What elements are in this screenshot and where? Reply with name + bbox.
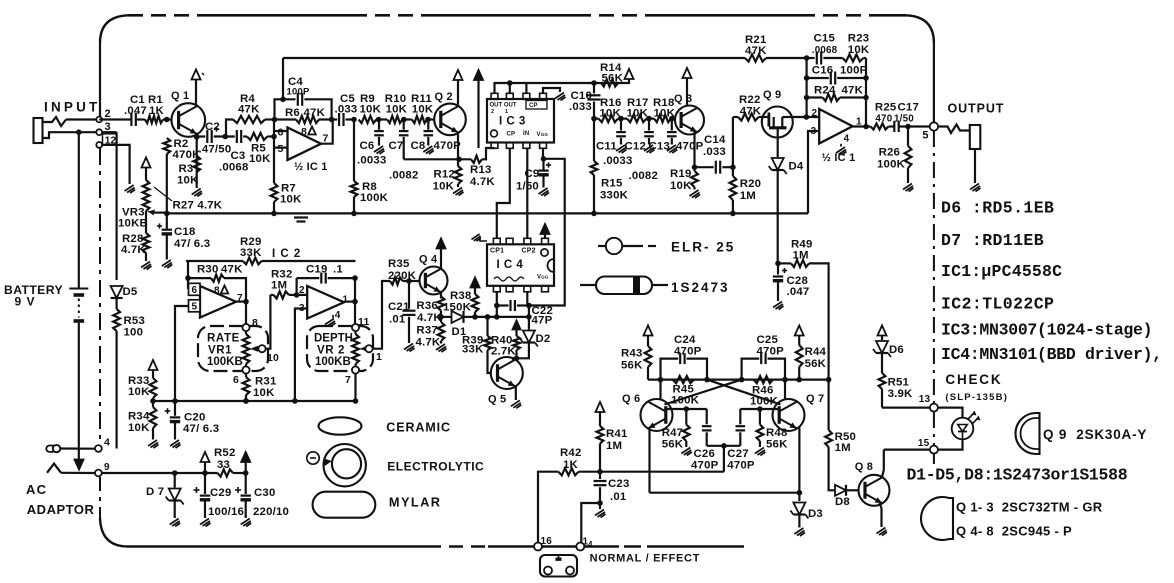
svg-text:C15: C15 xyxy=(814,33,836,45)
svg-text:IC2:TL022CP: IC2:TL022CP xyxy=(941,295,1054,314)
svg-text:10K: 10K xyxy=(848,44,870,56)
svg-text:56K: 56K xyxy=(805,358,827,370)
svg-text:Q 3: Q 3 xyxy=(674,93,692,105)
svg-text:11: 11 xyxy=(358,316,370,328)
svg-text:220K: 220K xyxy=(388,270,417,282)
svg-text:Q 8: Q 8 xyxy=(855,461,873,473)
svg-text:R43: R43 xyxy=(621,348,643,360)
svg-text:2: 2 xyxy=(105,108,111,120)
svg-text:C20: C20 xyxy=(184,412,206,424)
svg-text:470P: 470P xyxy=(727,460,755,472)
svg-text:R6: R6 xyxy=(285,107,300,119)
svg-text:10K: 10K xyxy=(249,153,271,165)
svg-text:5: 5 xyxy=(192,302,198,313)
svg-text:(SLP-135B): (SLP-135B) xyxy=(945,392,1008,403)
svg-text:Q 9: Q 9 xyxy=(763,89,781,101)
svg-text:100/16: 100/16 xyxy=(208,506,244,518)
svg-text:R31: R31 xyxy=(255,376,277,388)
svg-text:10K: 10K xyxy=(433,181,455,193)
svg-text:C8: C8 xyxy=(411,140,426,152)
svg-text:10K: 10K xyxy=(386,104,408,116)
svg-text:13: 13 xyxy=(919,394,931,405)
svg-text:Q 4- 8 2SC945 - P: Q 4- 8 2SC945 - P xyxy=(956,524,1072,539)
svg-text:D8: D8 xyxy=(835,496,850,508)
svg-text:C26: C26 xyxy=(694,448,716,460)
svg-text:47P: 47P xyxy=(532,315,553,327)
svg-text:½ IC 1: ½ IC 1 xyxy=(294,161,328,173)
svg-text:NORMAL / EFFECT: NORMAL / EFFECT xyxy=(590,553,701,565)
svg-text:10K: 10K xyxy=(670,180,692,192)
svg-text:Q 1- 3 2SC732TM - GR: Q 1- 3 2SC732TM - GR xyxy=(956,500,1103,515)
svg-text:10K: 10K xyxy=(627,108,649,120)
svg-text:R3: R3 xyxy=(179,163,194,175)
svg-text:.033: .033 xyxy=(703,146,726,158)
svg-text:47K: 47K xyxy=(740,106,762,118)
svg-text:470P: 470P xyxy=(691,460,719,472)
svg-text:1K: 1K xyxy=(149,105,165,117)
svg-text:IC4:MN3101(BBD driver),: IC4:MN3101(BBD driver), xyxy=(941,345,1162,364)
svg-text:C12: C12 xyxy=(625,141,647,153)
svg-text:R13: R13 xyxy=(470,164,492,176)
svg-text:R34: R34 xyxy=(128,411,150,423)
svg-text:R48: R48 xyxy=(766,427,788,439)
svg-text:C6: C6 xyxy=(360,140,375,152)
svg-text:C14: C14 xyxy=(704,134,726,146)
svg-text:C7: C7 xyxy=(389,140,404,152)
svg-text:470P: 470P xyxy=(757,346,785,358)
svg-text:1M: 1M xyxy=(793,250,809,262)
svg-text:6: 6 xyxy=(233,374,239,386)
svg-text:3.9K: 3.9K xyxy=(888,388,913,400)
svg-text:R53: R53 xyxy=(124,315,146,327)
svg-text:15: 15 xyxy=(918,438,930,449)
svg-text:1M: 1M xyxy=(271,280,287,292)
svg-text:9: 9 xyxy=(104,462,110,473)
svg-text:150K: 150K xyxy=(443,302,472,314)
svg-text:33K: 33K xyxy=(240,247,262,259)
svg-text:.033: .033 xyxy=(335,104,358,116)
svg-text:100P: 100P xyxy=(840,65,868,77)
svg-text:1/50: 1/50 xyxy=(894,114,914,125)
svg-text:INPUT: INPUT xyxy=(44,100,101,115)
svg-text:470P: 470P xyxy=(676,141,704,153)
svg-text:C19: C19 xyxy=(306,264,328,276)
svg-text:R41: R41 xyxy=(606,428,628,440)
svg-text:D2: D2 xyxy=(536,333,551,345)
svg-text:I C 3: I C 3 xyxy=(499,116,526,128)
svg-text:8: 8 xyxy=(214,286,220,297)
svg-text:R24: R24 xyxy=(814,85,836,97)
svg-text:Q 7: Q 7 xyxy=(806,393,824,405)
svg-text:10: 10 xyxy=(267,352,279,364)
svg-text:C23: C23 xyxy=(608,478,630,490)
svg-text:.0033: .0033 xyxy=(603,155,633,167)
svg-text:R27 4.7K: R27 4.7K xyxy=(173,200,223,212)
svg-text:R52: R52 xyxy=(214,447,236,459)
svg-text:47K: 47K xyxy=(842,85,864,97)
svg-text:47K: 47K xyxy=(304,107,326,119)
svg-text:1: 1 xyxy=(343,295,349,306)
svg-text:10K: 10K xyxy=(599,108,621,120)
svg-text:1M: 1M xyxy=(835,442,851,454)
svg-text:MYLAR: MYLAR xyxy=(389,495,442,510)
svg-text:4: 4 xyxy=(588,540,593,549)
svg-text:220/10: 220/10 xyxy=(253,506,289,518)
svg-text:47K: 47K xyxy=(238,104,260,116)
svg-text:4: 4 xyxy=(844,134,850,145)
svg-text:4.7K: 4.7K xyxy=(417,312,442,324)
svg-text:D6: D6 xyxy=(889,344,904,356)
svg-text:.47/50: .47/50 xyxy=(199,144,232,156)
svg-text:R30: R30 xyxy=(197,264,219,276)
svg-text:100P: 100P xyxy=(287,87,310,98)
svg-text:2: 2 xyxy=(299,285,305,296)
svg-text:10KB: 10KB xyxy=(118,218,148,230)
svg-text:Q 6: Q 6 xyxy=(622,393,640,405)
svg-text:AC: AC xyxy=(26,482,47,497)
svg-text:Q 9 2SK30A-Y: Q 9 2SK30A-Y xyxy=(1043,427,1147,442)
svg-text:I C 2: I C 2 xyxy=(272,248,301,260)
svg-text:C29: C29 xyxy=(210,487,232,499)
svg-text:.0082: .0082 xyxy=(629,170,659,182)
svg-text:10K: 10K xyxy=(128,386,150,398)
svg-text:CP: CP xyxy=(529,103,538,109)
svg-text:100K: 100K xyxy=(360,192,389,204)
svg-text:10K: 10K xyxy=(360,104,382,116)
svg-text:C11: C11 xyxy=(596,141,617,153)
svg-text:C2: C2 xyxy=(205,121,220,133)
svg-text:2: 2 xyxy=(812,108,818,119)
svg-text:6: 6 xyxy=(192,285,198,296)
svg-text:.0082: .0082 xyxy=(389,170,419,182)
svg-text:C27: C27 xyxy=(727,448,749,460)
svg-text:4: 4 xyxy=(104,437,110,449)
svg-text:Q 2: Q 2 xyxy=(435,91,453,103)
svg-text:D6 :RD5.1EB: D6 :RD5.1EB xyxy=(941,199,1054,218)
svg-text:C13: C13 xyxy=(649,141,671,153)
svg-text:R36: R36 xyxy=(416,300,438,312)
svg-text:D5: D5 xyxy=(123,286,138,298)
svg-text:1M: 1M xyxy=(606,440,622,452)
svg-text:7: 7 xyxy=(323,133,329,145)
svg-text:R23: R23 xyxy=(848,33,870,45)
svg-text:½ IC 1: ½ IC 1 xyxy=(822,152,856,164)
svg-text:D1-D5,D8:1S2473or1S1588: D1-D5,D8:1S2473or1S1588 xyxy=(907,466,1128,485)
svg-text:R12: R12 xyxy=(434,169,456,181)
svg-text:D 7: D 7 xyxy=(146,486,164,498)
svg-text:D7 :RD11EB: D7 :RD11EB xyxy=(941,231,1044,250)
svg-text:8: 8 xyxy=(301,126,307,138)
svg-text:33K: 33K xyxy=(462,344,484,356)
svg-text:.0033: .0033 xyxy=(357,155,387,167)
svg-text:100K: 100K xyxy=(877,159,906,171)
svg-text:R42: R42 xyxy=(560,447,582,459)
svg-text:R22: R22 xyxy=(739,94,761,106)
svg-text:C9: C9 xyxy=(525,168,540,180)
svg-text:D4: D4 xyxy=(789,161,804,173)
svg-text:56K: 56K xyxy=(621,360,643,372)
svg-text:47K: 47K xyxy=(221,264,243,276)
svg-text:.0068: .0068 xyxy=(219,162,249,174)
svg-text:.0068: .0068 xyxy=(812,45,838,56)
svg-text:47K: 47K xyxy=(745,45,767,57)
svg-text:6: 6 xyxy=(278,127,284,139)
svg-text:47/ 6.3: 47/ 6.3 xyxy=(174,238,210,250)
svg-text:10K: 10K xyxy=(654,108,676,120)
svg-text:I C 4: I C 4 xyxy=(497,259,524,271)
svg-text:1M: 1M xyxy=(740,190,756,202)
svg-text:Q 5: Q 5 xyxy=(488,394,506,406)
svg-text:CP: CP xyxy=(507,132,516,138)
svg-text:C25: C25 xyxy=(757,334,779,346)
svg-text:Q 4: Q 4 xyxy=(419,254,438,266)
svg-text:CP1: CP1 xyxy=(490,248,504,255)
svg-text:.047: .047 xyxy=(787,286,810,298)
svg-text:9 V: 9 V xyxy=(15,295,36,309)
svg-text:R37: R37 xyxy=(416,325,438,337)
svg-text:1: 1 xyxy=(376,351,382,363)
svg-text:R26: R26 xyxy=(879,147,901,159)
svg-text:7: 7 xyxy=(345,374,351,386)
svg-text:56K: 56K xyxy=(662,439,684,451)
svg-text:1: 1 xyxy=(505,109,508,115)
svg-text:C21: C21 xyxy=(388,301,410,313)
svg-text:R51: R51 xyxy=(888,377,910,389)
svg-text:1K: 1K xyxy=(563,459,579,471)
svg-text:RATE: RATE xyxy=(207,333,240,345)
svg-text:56K: 56K xyxy=(766,439,788,451)
svg-text:.01: .01 xyxy=(610,491,627,503)
svg-text:100: 100 xyxy=(124,327,144,339)
svg-text:C18: C18 xyxy=(174,226,196,238)
svg-text:VR 2: VR 2 xyxy=(317,345,345,357)
svg-text:D3: D3 xyxy=(808,508,823,520)
svg-text:1S2473: 1S2473 xyxy=(671,280,730,295)
svg-text:CERAMIC: CERAMIC xyxy=(386,421,451,435)
svg-text:2.7K: 2.7K xyxy=(491,346,516,358)
svg-text:10K: 10K xyxy=(280,194,302,206)
svg-text:10K: 10K xyxy=(412,104,434,116)
svg-text:100KB: 100KB xyxy=(315,356,351,368)
svg-text:R35: R35 xyxy=(388,258,410,270)
svg-text:33: 33 xyxy=(217,459,230,471)
svg-text:R20: R20 xyxy=(740,178,762,190)
svg-text:OUTPUT: OUTPUT xyxy=(948,102,1005,116)
svg-text:470P: 470P xyxy=(674,346,702,358)
svg-text:4.7K: 4.7K xyxy=(416,337,441,349)
svg-text:Q 1: Q 1 xyxy=(171,90,189,102)
svg-text:C24: C24 xyxy=(674,334,696,346)
svg-text:C16: C16 xyxy=(812,65,834,77)
svg-text:R44: R44 xyxy=(805,346,827,358)
svg-text:C3: C3 xyxy=(231,150,246,162)
svg-text:IN: IN xyxy=(523,131,529,137)
svg-text:DEPTH: DEPTH xyxy=(314,333,353,345)
svg-text:ELR- 25: ELR- 25 xyxy=(671,240,735,255)
svg-text:.1: .1 xyxy=(333,264,343,276)
svg-text:.033: .033 xyxy=(569,101,592,113)
svg-text:8: 8 xyxy=(252,317,258,329)
svg-text:16: 16 xyxy=(541,536,553,547)
svg-text:R19: R19 xyxy=(670,168,692,180)
svg-text:5: 5 xyxy=(278,143,284,155)
svg-text:56K: 56K xyxy=(602,73,624,85)
svg-text:OUT OUT: OUT OUT xyxy=(490,103,517,109)
svg-text:C30: C30 xyxy=(254,487,276,499)
svg-text:ADAPTOR: ADAPTOR xyxy=(27,502,95,517)
svg-text:R47: R47 xyxy=(662,427,684,439)
svg-text:R25: R25 xyxy=(875,102,897,114)
svg-text:10K: 10K xyxy=(128,422,150,434)
svg-text:4.7K: 4.7K xyxy=(470,176,495,188)
svg-text:1/50: 1/50 xyxy=(516,181,539,193)
svg-text:VR1: VR1 xyxy=(208,345,232,357)
svg-text:IC1:µPC4558C: IC1:µPC4558C xyxy=(941,262,1062,281)
svg-text:4: 4 xyxy=(335,310,341,321)
svg-text:330K: 330K xyxy=(600,190,629,202)
svg-text:.047: .047 xyxy=(124,105,147,117)
svg-text:CP2: CP2 xyxy=(522,248,536,255)
svg-text:C17: C17 xyxy=(898,102,920,114)
svg-text:ELECTROLYTIC: ELECTROLYTIC xyxy=(387,460,484,474)
svg-text:10K: 10K xyxy=(177,175,199,187)
svg-text:R38: R38 xyxy=(450,290,472,302)
svg-text:.01: .01 xyxy=(389,314,406,326)
svg-text:10K: 10K xyxy=(253,387,275,399)
svg-text:4.7K: 4.7K xyxy=(121,244,146,256)
svg-text:2: 2 xyxy=(491,109,494,115)
svg-text:470: 470 xyxy=(875,114,892,125)
svg-text:IC3:MN3007(1024-stage): IC3:MN3007(1024-stage) xyxy=(941,321,1152,340)
svg-text:5: 5 xyxy=(922,130,928,142)
svg-text:47/ 6.3: 47/ 6.3 xyxy=(183,423,219,435)
svg-text:R15: R15 xyxy=(601,178,623,190)
svg-text:100KB: 100KB xyxy=(207,356,243,368)
svg-text:CHECK: CHECK xyxy=(945,372,1002,387)
